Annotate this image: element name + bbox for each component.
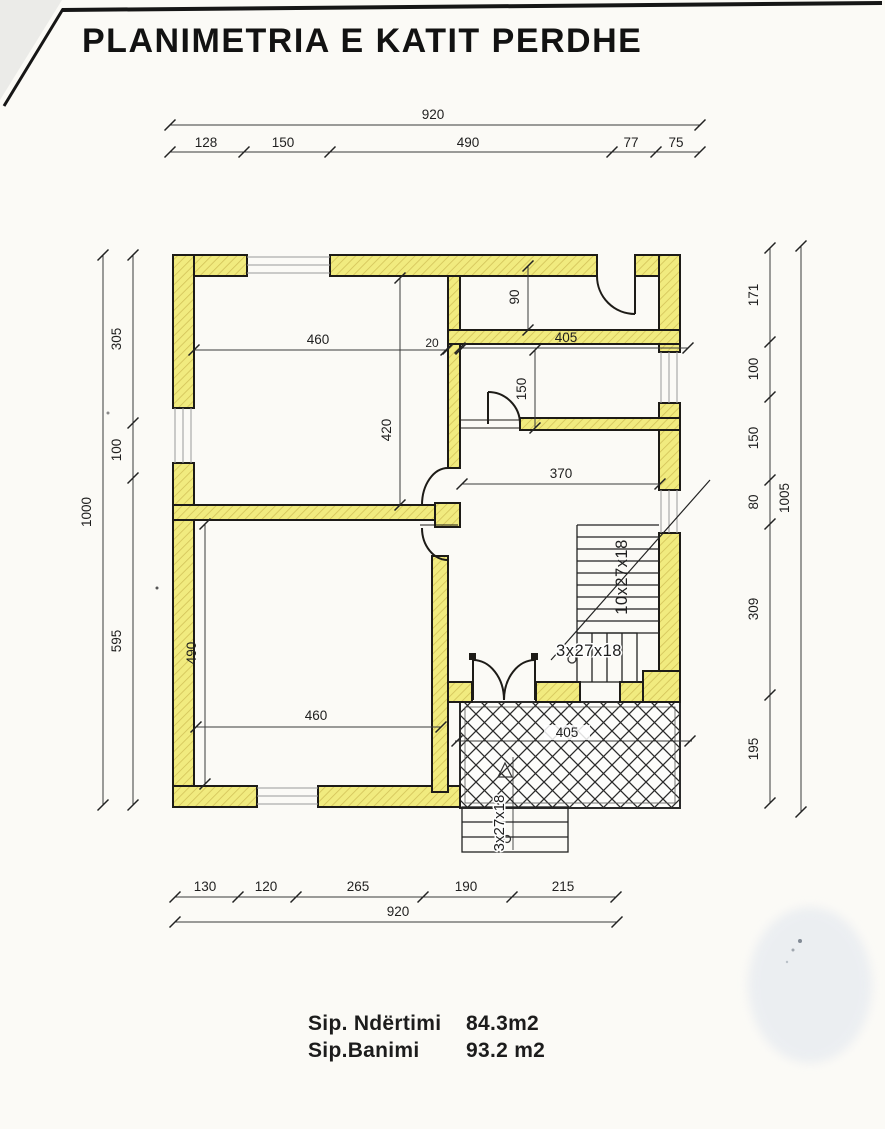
dim-label-bottom-seg-2: 265 [347,879,370,894]
stair-label-entry: 3x27x18 [491,795,508,852]
dim-label-right-seg-5: 195 [746,738,761,761]
dim-label-top-seg-2: 490 [457,135,480,150]
construction-area-label: Sip. Ndërtimi [308,1012,466,1036]
dim-label-right-seg-3: 80 [746,494,761,509]
dim-label-bottom-seg-4: 215 [552,879,575,894]
dim-label-top-seg-1: 150 [272,135,295,150]
living-area-value: 93.2 m2 [466,1039,545,1063]
terrace [460,702,680,808]
dim-label-top-seg-0: 128 [195,135,218,150]
dim-label-top-seg-4: 75 [668,135,683,150]
dim-label-top-total: 920 [422,107,445,122]
stair-label-main: 10x27x18 [613,539,631,615]
construction-area-value: 84.3m2 [466,1012,545,1036]
page-title: PLANIMETRIA E KATIT PERDHE [82,22,642,61]
dim-label-top-seg-3: 77 [623,135,638,150]
dim-label-left-seg-1: 100 [109,439,124,462]
dim-label-right-seg-0: 171 [746,284,761,307]
dim-label-wall-thickness: 20 [425,336,439,350]
scan-artifacts [0,0,882,1063]
door-mid-room [460,392,520,428]
dim-label-right-seg-4: 309 [746,598,761,621]
dim-label-bottom-room-height: 490 [184,642,199,665]
dim-label-left-seg-2: 595 [109,630,124,653]
dim-label-top-room-width: 460 [307,332,330,347]
dim-label-left-seg-0: 305 [109,328,124,351]
dim-label-hall-width: 370 [550,466,573,481]
dim-label-corridor-height: 90 [507,289,522,304]
dim-label-right-seg-1: 100 [746,358,761,381]
dim-label-bottom-seg-0: 130 [194,879,217,894]
dim-label-top-room-height: 420 [379,419,394,442]
dim-label-upper-right-width: 405 [555,330,578,345]
dim-label-terrace-width: 405 [556,725,579,740]
dim-label-mid-room-height: 150 [514,378,529,401]
door-top-right [597,276,635,314]
dim-label-right-total: 1005 [777,483,792,513]
double-door-terrace [469,653,538,700]
stair-label-landing: 3x27x18 [556,642,622,660]
floor-plan-svg: 920 128 150 490 77 75 130 120 265 190 21… [0,0,885,1129]
dim-label-bottom-total: 920 [387,904,410,919]
dim-chain-right [765,241,807,818]
dim-label-bottom-seg-1: 120 [255,879,278,894]
dim-label-right-seg-2: 150 [746,427,761,450]
area-summary: Sip. Ndërtimi 84.3m2 Sip.Banimi 93.2 m2 [308,1012,545,1063]
living-area-label: Sip.Banimi [308,1039,466,1063]
dim-label-bottom-seg-3: 190 [455,879,478,894]
floor-plan-sheet: 920 128 150 490 77 75 130 120 265 190 21… [0,0,885,1129]
dim-label-bottom-room-width: 460 [305,708,328,723]
dim-label-left-total: 1000 [79,497,94,527]
